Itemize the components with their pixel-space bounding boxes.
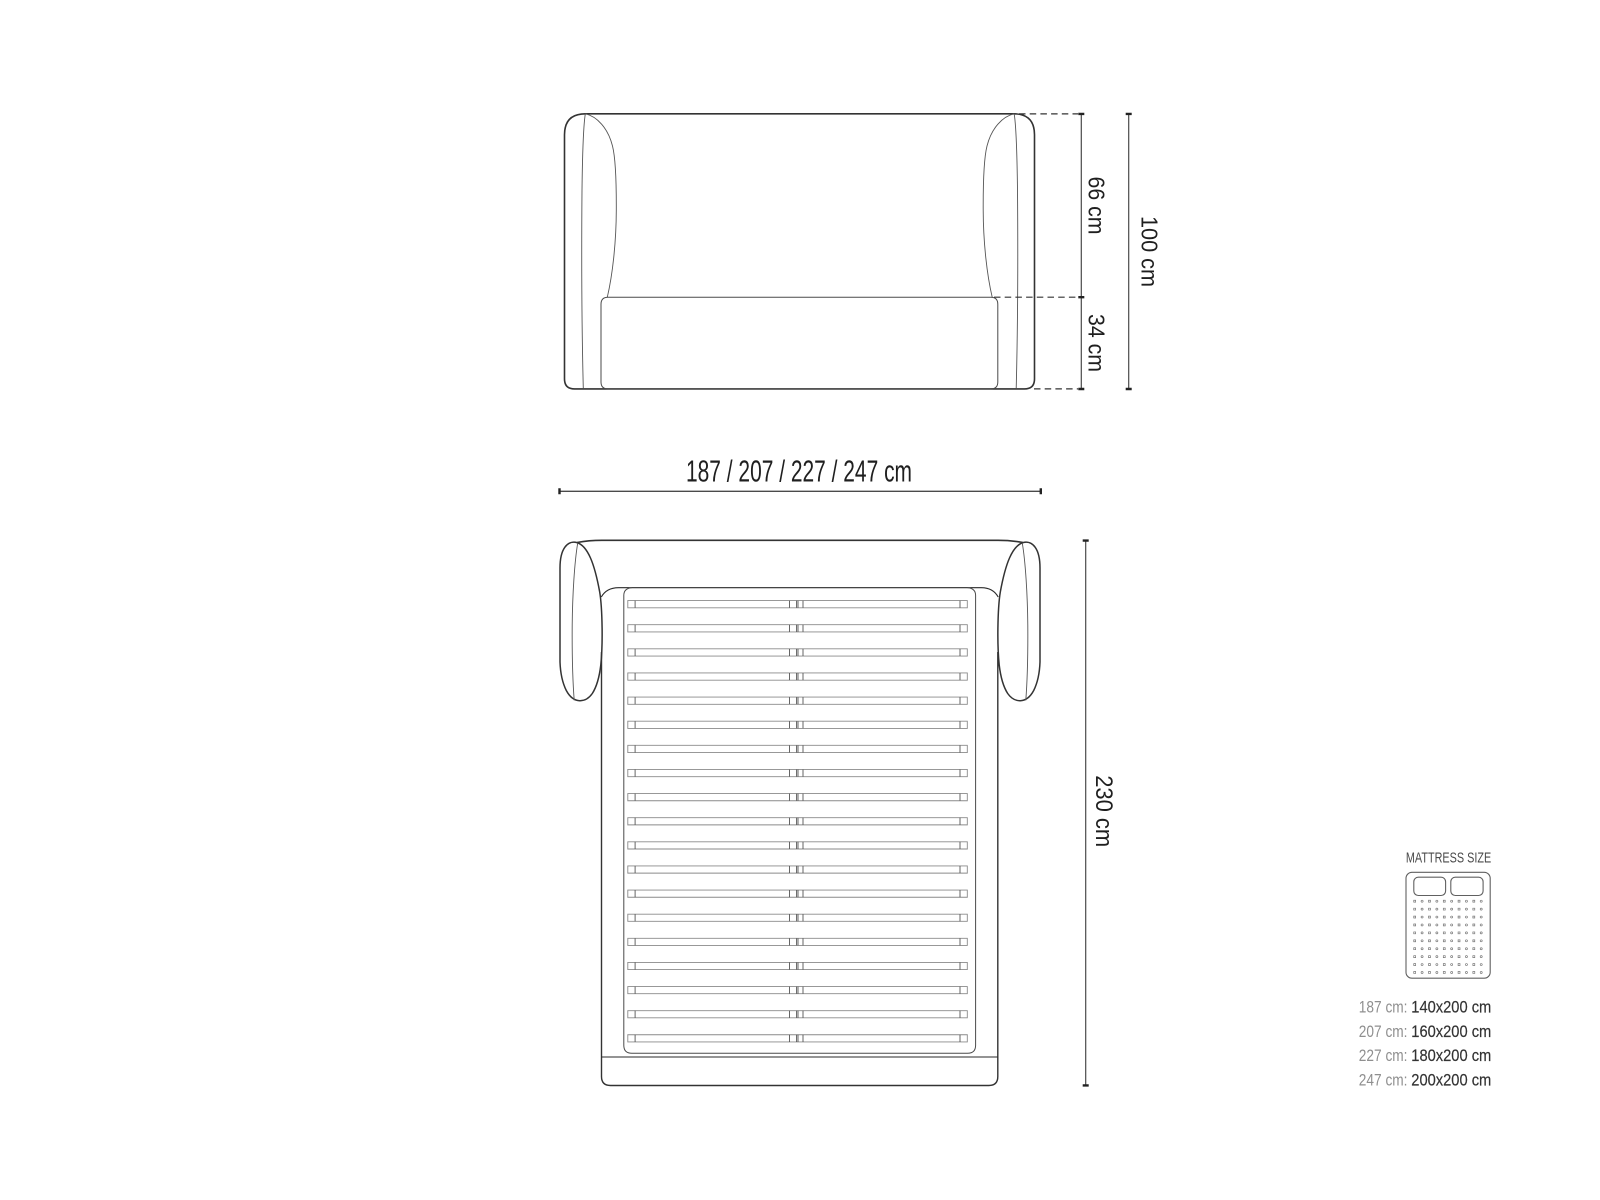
svg-text:227 cm:: 227 cm: (1359, 1046, 1408, 1065)
svg-text:247 cm:: 247 cm: (1359, 1071, 1408, 1090)
svg-text:187 cm:: 187 cm: (1359, 998, 1408, 1017)
svg-text:34 cm: 34 cm (1084, 314, 1110, 372)
svg-text:230 cm: 230 cm (1090, 775, 1117, 847)
svg-text:187 / 207 / 227 / 247 cm: 187 / 207 / 227 / 247 cm (686, 454, 912, 489)
svg-text:207 cm:: 207 cm: (1359, 1022, 1408, 1041)
svg-text:180x200 cm: 180x200 cm (1411, 1046, 1491, 1065)
svg-text:140x200 cm: 140x200 cm (1411, 998, 1491, 1017)
svg-text:66 cm: 66 cm (1084, 177, 1110, 235)
svg-text:160x200 cm: 160x200 cm (1411, 1022, 1491, 1041)
svg-text:MATTRESS SIZE: MATTRESS SIZE (1406, 850, 1491, 867)
svg-text:200x200 cm: 200x200 cm (1411, 1071, 1491, 1090)
svg-text:100 cm: 100 cm (1137, 216, 1163, 287)
